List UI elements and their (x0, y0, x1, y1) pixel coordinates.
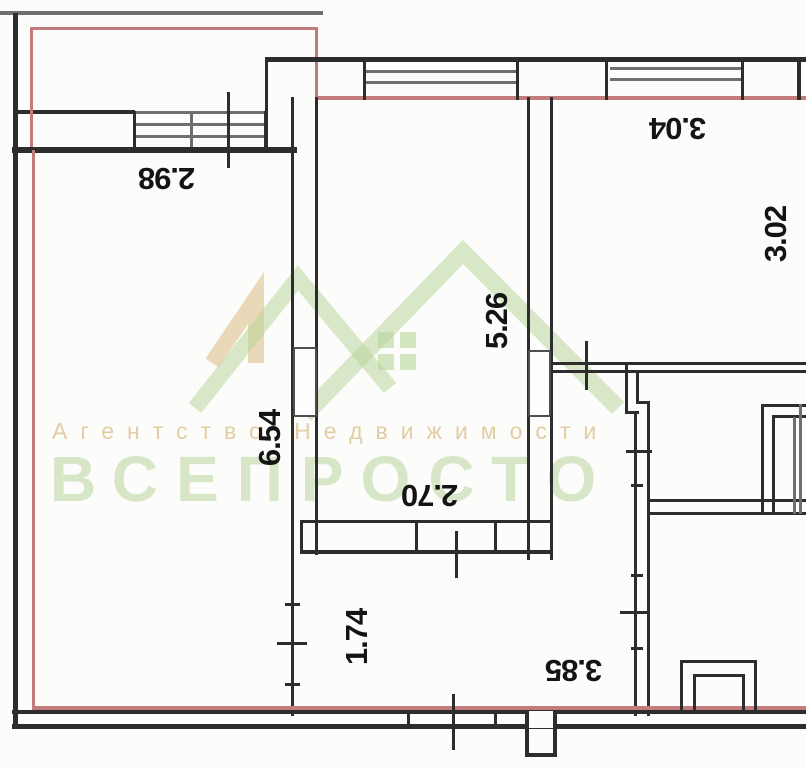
interior-wall (315, 97, 318, 555)
dimension-label-top-right-depth: 3.02 (758, 206, 794, 262)
dimension-label-balcony: 2.98 (139, 160, 195, 196)
door-opening (293, 347, 317, 417)
window-jamb (797, 57, 801, 100)
door-jamb (631, 484, 643, 487)
logo-window-icon (378, 332, 416, 370)
window-hatch (133, 111, 267, 114)
vent-shaft (742, 674, 745, 710)
interior-wall (300, 550, 553, 554)
window-hatch (190, 111, 193, 151)
entrance-door (525, 753, 557, 757)
toilet-wall (793, 417, 796, 514)
entrance-door (525, 710, 529, 757)
floor-plan: Агентство Недвижимости ВСЕПРОСТО (0, 0, 806, 768)
interior-wall (647, 499, 806, 502)
window-hatch (133, 111, 136, 151)
dimension-label-kitchen-width: 3.85 (546, 652, 602, 688)
interior-wall (300, 520, 553, 523)
dimension-tick (585, 341, 588, 390)
interior-wall (527, 97, 530, 560)
door-opening (528, 350, 551, 417)
window-hatch (365, 70, 518, 73)
door-jamb (415, 520, 418, 554)
dimension-tick (452, 694, 455, 750)
bathroom-top-wall (552, 370, 806, 373)
wall-segment (265, 57, 268, 150)
window-jamb (363, 57, 366, 100)
vent-shaft (680, 660, 683, 710)
bathroom-left-wall (636, 373, 639, 404)
balcony-bottom-wall (15, 110, 135, 114)
door-jamb (631, 647, 643, 650)
dimension-tick (626, 450, 652, 453)
dimension-label-bedroom-width: 2.70 (402, 477, 458, 513)
toilet-wall (799, 404, 802, 514)
balcony-outer-edge (0, 11, 323, 15)
door-jamb (285, 683, 300, 686)
left-exterior-wall (13, 13, 18, 724)
dimension-tick (455, 531, 458, 578)
living-room-top-wall (12, 147, 297, 153)
interior-wall (647, 512, 806, 515)
dimension-tick (277, 642, 307, 645)
interior-wall (550, 97, 553, 560)
window-jamb (516, 57, 519, 100)
window-hatch (610, 78, 743, 81)
door-jamb (285, 603, 300, 606)
door-jamb (494, 710, 497, 729)
window-hatch (133, 123, 267, 126)
dimension-tick (620, 611, 650, 614)
window-jamb (741, 57, 744, 100)
apartment-boundary (30, 27, 33, 150)
door-jamb (631, 574, 643, 577)
apartment-boundary (32, 150, 35, 707)
top-exterior-wall (265, 57, 806, 62)
entrance-door-gap (529, 711, 553, 728)
apartment-boundary (315, 96, 806, 100)
window-hatch (365, 81, 518, 84)
dimension-label-living-depth: 6.54 (252, 410, 288, 466)
dimension-label-hall-depth: 1.74 (339, 609, 375, 665)
dimension-tick (227, 92, 230, 168)
vent-shaft (754, 660, 757, 710)
window-hatch (610, 67, 743, 70)
window-hatch (133, 135, 267, 138)
door-jamb (494, 520, 497, 554)
window-jamb (605, 57, 608, 100)
toilet-wall (761, 404, 764, 515)
bathroom-top-wall (552, 362, 806, 365)
hall-right-wall (634, 414, 637, 716)
watermark-agency-name: Агентство Недвижимости (52, 418, 609, 445)
door-jamb (407, 710, 410, 729)
vent-shaft (680, 660, 757, 663)
vent-shaft (693, 674, 696, 710)
apartment-boundary (30, 27, 318, 30)
entrance-door (553, 710, 557, 757)
dimension-label-top-right-width: 3.04 (650, 110, 706, 146)
bathroom-left-wall (625, 362, 628, 414)
dimension-label-bedroom-depth: 5.26 (479, 293, 515, 349)
apartment-boundary (315, 27, 318, 99)
toilet-wall (772, 415, 775, 514)
vent-shaft (693, 674, 745, 677)
wall-segment (300, 520, 303, 554)
